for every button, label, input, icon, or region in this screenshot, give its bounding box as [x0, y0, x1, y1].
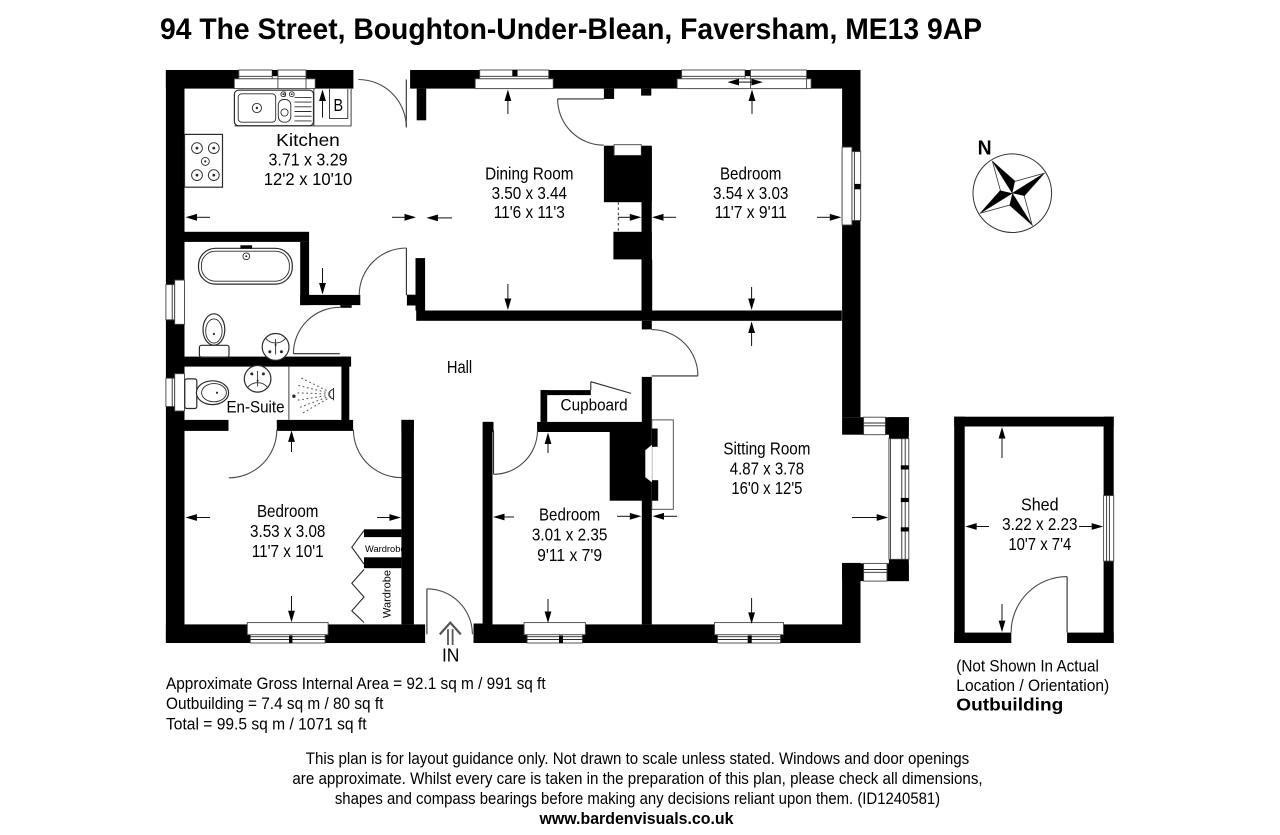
svg-text:10'7 x 7'4: 10'7 x 7'4 [1008, 534, 1071, 554]
svg-text:This plan is for layout guidan: This plan is for layout guidance only. N… [306, 750, 969, 768]
svg-text:Approximate Gross Internal Are: Approximate Gross Internal Area = 92.1 s… [166, 675, 546, 693]
svg-text:shapes and compass bearings be: shapes and compass bearings before makin… [335, 790, 940, 808]
svg-text:3.50 x 3.44: 3.50 x 3.44 [492, 183, 568, 203]
svg-text:En-Suite: En-Suite [226, 398, 284, 416]
svg-text:Location / Orientation): Location / Orientation) [956, 677, 1109, 695]
svg-text:Cupboard: Cupboard [561, 397, 628, 415]
svg-text:N: N [978, 137, 992, 159]
svg-text:94 The Street, Boughton-Under-: 94 The Street, Boughton-Under-Blean, Fav… [160, 13, 982, 46]
svg-text:Bedroom: Bedroom [720, 164, 782, 184]
svg-text:Bedroom: Bedroom [539, 504, 600, 524]
svg-text:B: B [334, 95, 344, 115]
svg-text:Kitchen: Kitchen [276, 130, 340, 150]
svg-text:11'6 x 11'3: 11'6 x 11'3 [494, 202, 565, 222]
svg-text:9'11 x 7'9: 9'11 x 7'9 [537, 545, 602, 565]
svg-text:11'7 x 9'11: 11'7 x 9'11 [715, 202, 787, 222]
svg-text:Bedroom: Bedroom [257, 501, 319, 521]
svg-text:3.71 x 3.29: 3.71 x 3.29 [269, 150, 348, 170]
svg-text:IN: IN [442, 645, 460, 666]
svg-text:11'7 x 10'1: 11'7 x 10'1 [252, 541, 324, 561]
svg-text:Outbuilding = 7.4 sq m / 80 sq: Outbuilding = 7.4 sq m / 80 sq ft [166, 695, 384, 713]
svg-text:www.bardenvisuals.co.uk: www.bardenvisuals.co.uk [539, 810, 735, 828]
svg-text:Shed: Shed [1021, 494, 1059, 514]
svg-text:12'2 x 10'10: 12'2 x 10'10 [264, 169, 352, 189]
svg-text:3.22 x 2.23: 3.22 x 2.23 [1002, 514, 1077, 534]
svg-text:Sitting Room: Sitting Room [723, 439, 810, 459]
svg-text:3.54 x 3.03: 3.54 x 3.03 [713, 183, 788, 203]
svg-text:Wardrobe: Wardrobe [365, 544, 406, 555]
svg-text:Dining Room: Dining Room [485, 164, 573, 184]
svg-text:Outbuilding: Outbuilding [956, 695, 1063, 715]
svg-text:16'0 x 12'5: 16'0 x 12'5 [731, 478, 802, 498]
svg-text:3.01 x 2.35: 3.01 x 2.35 [532, 525, 608, 545]
svg-text:Wardrobe: Wardrobe [381, 570, 393, 618]
svg-text:4.87 x 3.78: 4.87 x 3.78 [730, 458, 804, 478]
svg-text:(Not Shown In Actual: (Not Shown In Actual [956, 657, 1099, 675]
svg-text:3.53 x 3.08: 3.53 x 3.08 [250, 521, 325, 541]
svg-text:are approximate. Whilst every: are approximate. Whilst every care is ta… [292, 770, 982, 788]
svg-text:Hall: Hall [447, 357, 472, 377]
svg-text:Total = 99.5 sq m / 1071 sq ft: Total = 99.5 sq m / 1071 sq ft [166, 715, 367, 733]
